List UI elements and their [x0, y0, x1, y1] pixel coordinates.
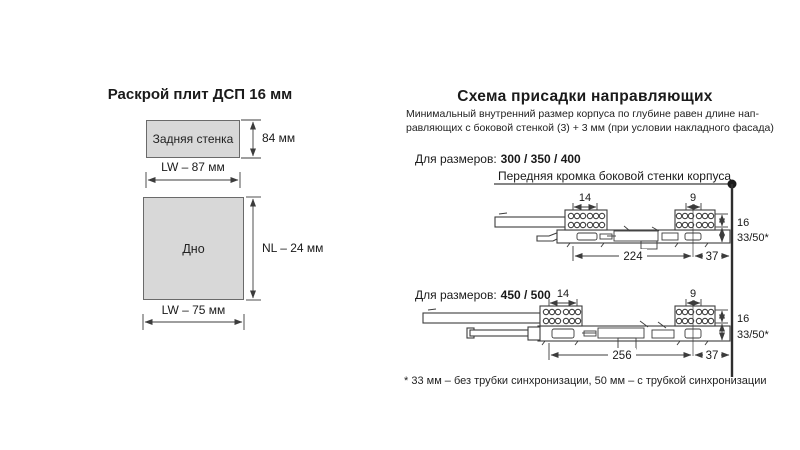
- svg-text:16: 16: [737, 313, 749, 325]
- svg-text:33/50*: 33/50*: [737, 232, 770, 244]
- svg-text:14: 14: [579, 192, 591, 204]
- slide-diagram-2: 14 9 256 37: [423, 288, 770, 362]
- back-wall-dimensions: [146, 120, 261, 188]
- rail-bar-2: [423, 313, 540, 323]
- svg-text:16: 16: [737, 217, 749, 229]
- bottom-panel-dimensions: [143, 197, 261, 330]
- rail-bar-1: [495, 217, 567, 227]
- svg-text:14: 14: [557, 288, 569, 300]
- dim-14-1: 14: [573, 192, 597, 210]
- svg-text:224: 224: [623, 251, 643, 263]
- front-edge-reference: [494, 180, 737, 378]
- svg-text:9: 9: [690, 288, 696, 300]
- technical-drawing: 14 9 224 37: [0, 0, 800, 450]
- front-bracket-2: [528, 327, 540, 340]
- svg-text:37: 37: [706, 350, 719, 362]
- dim-14-2: 14: [549, 288, 577, 306]
- dim-256-37: 256 37: [549, 343, 729, 362]
- slide-diagram-1: 14 9 224 37: [495, 192, 770, 263]
- svg-text:256: 256: [612, 350, 631, 362]
- svg-text:37: 37: [706, 251, 719, 263]
- svg-text:33/50*: 33/50*: [737, 329, 770, 341]
- instruction-page: Раскрой плит ДСП 16 мм Задняя стенка 84 …: [0, 0, 800, 450]
- svg-text:9: 9: [690, 192, 696, 204]
